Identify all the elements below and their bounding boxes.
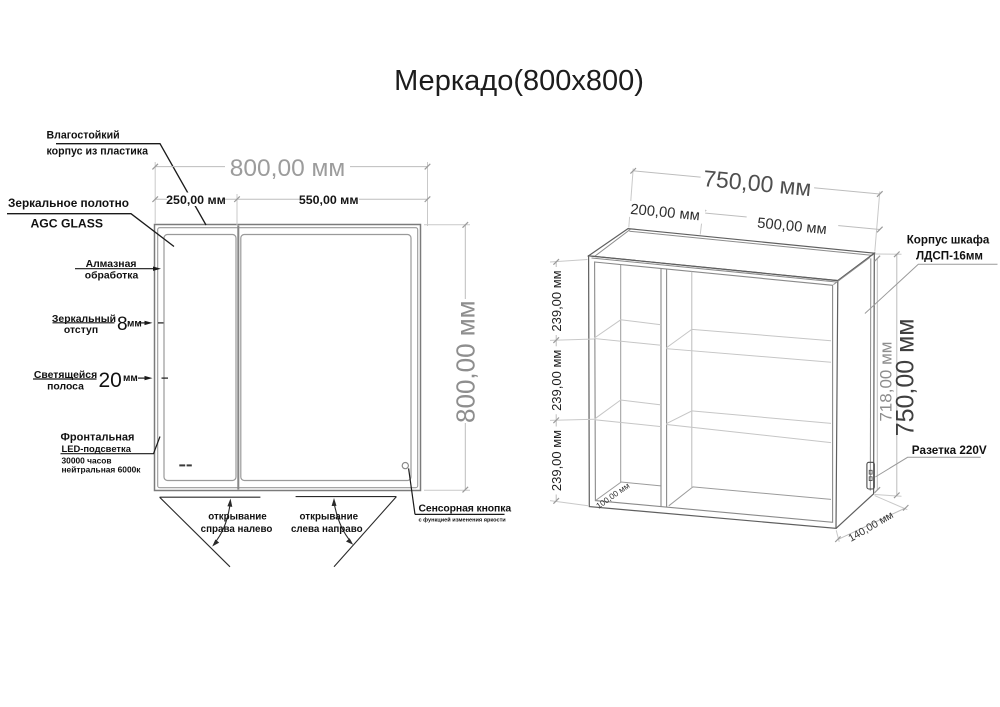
svg-text:Зеркальное полотно: Зеркальное полотно bbox=[8, 196, 129, 210]
svg-text:250,00 мм: 250,00 мм bbox=[166, 193, 226, 207]
svg-text:550,00 мм: 550,00 мм bbox=[299, 193, 359, 207]
svg-text:справа налево: справа налево bbox=[201, 524, 273, 535]
svg-text:800,00 мм: 800,00 мм bbox=[230, 155, 345, 182]
svg-text:нейтральная 6000к: нейтральная 6000к bbox=[62, 464, 142, 474]
svg-text:отступ: отступ bbox=[64, 325, 98, 336]
svg-text:слева направо: слева направо bbox=[291, 524, 363, 535]
svg-text:100,00 мм: 100,00 мм bbox=[595, 481, 632, 511]
svg-text:ЛДСП-16мм: ЛДСП-16мм bbox=[916, 250, 983, 263]
svg-text:Корпус шкафа: Корпус шкафа bbox=[907, 234, 990, 247]
svg-text:500,00 мм: 500,00 мм bbox=[756, 216, 827, 238]
svg-text:8: 8 bbox=[117, 314, 128, 335]
svg-text:корпус из пластика: корпус из пластика bbox=[47, 145, 149, 157]
svg-text:LED-подсветка: LED-подсветка bbox=[62, 443, 132, 454]
svg-text:140,00 мм: 140,00 мм bbox=[846, 509, 895, 544]
svg-text:Фронтальная: Фронтальная bbox=[61, 432, 135, 444]
svg-text:239,00 мм: 239,00 мм bbox=[549, 350, 564, 411]
svg-text:20: 20 bbox=[99, 369, 122, 392]
svg-text:Меркадо(800x800): Меркадо(800x800) bbox=[394, 65, 644, 97]
svg-text:полоса: полоса bbox=[47, 381, 84, 392]
svg-text:800,00 мм: 800,00 мм bbox=[451, 300, 481, 423]
svg-text:мм: мм bbox=[127, 319, 142, 330]
svg-text:200,00 мм: 200,00 мм bbox=[630, 202, 701, 224]
svg-text:открывание: открывание bbox=[208, 511, 267, 522]
svg-text:750,00 мм: 750,00 мм bbox=[702, 165, 812, 201]
svg-text:Разетка 220V: Разетка 220V bbox=[912, 444, 987, 457]
svg-text:открывание: открывание bbox=[300, 511, 359, 522]
svg-text:AGC GLASS: AGC GLASS bbox=[31, 216, 103, 230]
svg-text:Сенсорная кнопка: Сенсорная кнопка bbox=[419, 504, 512, 515]
svg-text:239,00 мм: 239,00 мм bbox=[549, 430, 564, 491]
svg-text:Влагостойкий: Влагостойкий bbox=[47, 130, 120, 142]
svg-text:с функцией изменения яркости: с функцией изменения яркости bbox=[419, 517, 507, 524]
svg-text:мм: мм bbox=[123, 373, 138, 384]
svg-text:750,00 мм: 750,00 мм bbox=[892, 319, 920, 437]
svg-text:239,00 мм: 239,00 мм bbox=[549, 270, 564, 331]
svg-text:обработка: обработка bbox=[85, 269, 139, 281]
